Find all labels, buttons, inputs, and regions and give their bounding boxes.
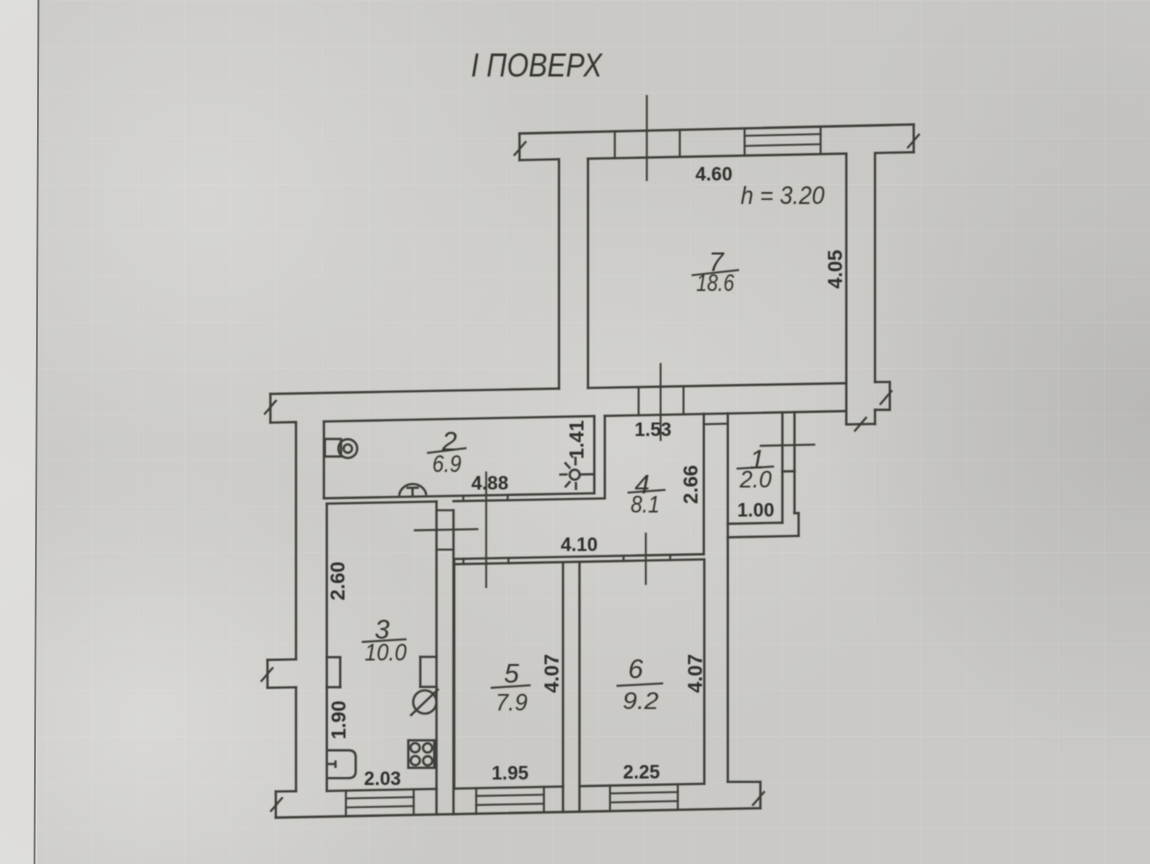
svg-text:2.03: 2.03 bbox=[364, 769, 401, 790]
svg-text:І ПОВЕРХ: І ПОВЕРХ bbox=[471, 46, 604, 83]
svg-text:1.00: 1.00 bbox=[737, 501, 774, 522]
svg-text:2.66: 2.66 bbox=[680, 465, 702, 504]
svg-text:6: 6 bbox=[628, 654, 644, 684]
svg-text:1.41: 1.41 bbox=[566, 420, 588, 459]
svg-text:6.9: 6.9 bbox=[432, 451, 461, 478]
svg-text:10.0: 10.0 bbox=[365, 639, 408, 666]
svg-text:4.07: 4.07 bbox=[685, 654, 707, 693]
svg-text:4.07: 4.07 bbox=[542, 654, 564, 693]
svg-text:4.88: 4.88 bbox=[471, 474, 508, 495]
svg-text:5: 5 bbox=[504, 658, 520, 688]
svg-text:4.05: 4.05 bbox=[825, 250, 847, 289]
svg-text:1.95: 1.95 bbox=[492, 763, 529, 784]
svg-text:h = 3.20: h = 3.20 bbox=[741, 182, 825, 210]
svg-text:7.9: 7.9 bbox=[496, 690, 528, 717]
svg-text:8.1: 8.1 bbox=[631, 491, 660, 518]
svg-text:1.53: 1.53 bbox=[635, 420, 672, 441]
svg-text:1.90: 1.90 bbox=[328, 700, 350, 739]
svg-text:2.60: 2.60 bbox=[328, 562, 350, 601]
svg-text:2.25: 2.25 bbox=[623, 762, 660, 783]
svg-text:2.0: 2.0 bbox=[739, 467, 773, 494]
svg-text:18.6: 18.6 bbox=[696, 270, 735, 297]
svg-text:4.60: 4.60 bbox=[695, 164, 732, 185]
svg-text:9.2: 9.2 bbox=[623, 688, 659, 715]
svg-text:4.10: 4.10 bbox=[561, 535, 598, 556]
